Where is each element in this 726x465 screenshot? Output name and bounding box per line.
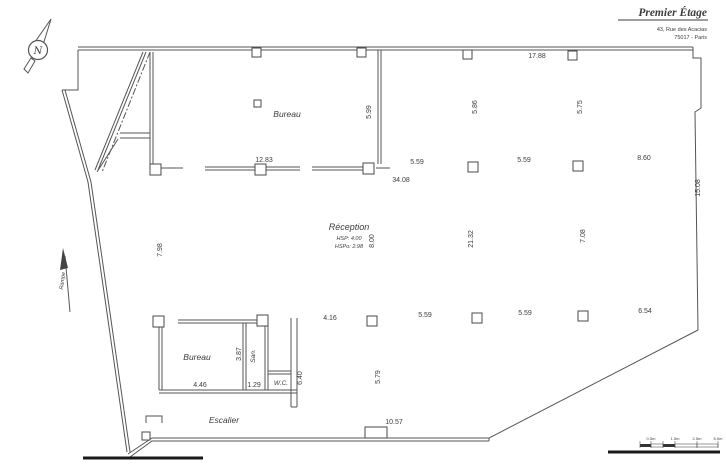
dim-bot-bay-3: 5.59 [518, 310, 532, 317]
dim-bay-height-2: 5.75 [577, 100, 584, 114]
room-label-bureau-top: Bureau [273, 109, 301, 119]
dim-bot-bay-4: 6.54 [638, 308, 652, 315]
dim-mid-bay-2: 5.59 [517, 157, 531, 164]
scale-label-4: 5.0m [714, 436, 724, 441]
page-title: Premier Étage [638, 5, 707, 19]
room-label-bureau-bottom: Bureau [183, 352, 211, 362]
reception-hspo: HSPo: 2.98 [335, 244, 364, 250]
stair-wall-hook [146, 416, 162, 423]
columns [150, 48, 588, 327]
ramp-axis-line [102, 52, 150, 172]
dimension-labels-vertical: 5.99 5.86 5.75 7.98 8.00 21.32 7.08 15.0… [157, 100, 702, 385]
dim-mid-bay-1: 5.59 [410, 159, 424, 166]
bottom-opening-rect [365, 427, 387, 438]
north-letter: N [33, 46, 44, 57]
floor-plan-page: Premier Étage 43, Rue des Acacias 75017 … [0, 0, 726, 465]
title-block: Premier Étage 43, Rue des Acacias 75017 … [618, 5, 708, 41]
dim-bot-bay-1: 4.16 [323, 315, 337, 322]
dim-bureau-top-height: 5.99 [366, 105, 373, 119]
dim-top-width: 17.88 [528, 53, 546, 60]
dim-bureau-width: 12.83 [255, 157, 273, 164]
dim-san-width: 1.29 [247, 382, 261, 389]
address-line-1: 43, Rue des Acacias [657, 27, 707, 33]
dim-right-height: 15.08 [695, 179, 702, 197]
address-line-2: 75017 - Paris [674, 35, 707, 41]
dim-mid-bay-3: 8.60 [637, 155, 651, 162]
room-label-wc: W.C. [274, 380, 288, 387]
dim-shaft-height: 6.40 [297, 371, 304, 385]
reception-hsp: HSP: 4.00 [336, 236, 362, 242]
room-label-escalier: Escalier [209, 415, 240, 425]
dim-bottom-opening: 10.57 [385, 419, 403, 426]
ramp-walls [60, 52, 150, 312]
scale-label-1: 0.5m [647, 436, 657, 441]
room-label-san: San. [250, 349, 257, 363]
floor-plan-svg: Premier Étage 43, Rue des Acacias 75017 … [0, 0, 726, 465]
dim-bay-height-1: 5.86 [472, 100, 479, 114]
dim-bureau-bottom-width: 4.46 [193, 382, 207, 389]
bottom-wall-notch [142, 432, 150, 440]
scale-label-3: 2.5m [693, 436, 703, 441]
dim-bureau-bottom-height: 3.87 [236, 347, 243, 361]
dim-bottom-bay-height: 5.79 [375, 370, 382, 384]
scale-bar: 0.5m 1.5m 2.5m 5.0m [608, 436, 723, 452]
dim-reception-width: 8.00 [369, 234, 376, 248]
dim-reception-height: 21.32 [468, 230, 475, 248]
dim-right-bay-height: 7.08 [580, 229, 587, 243]
north-handle-icon [24, 58, 35, 73]
ramp-label: Rampe [59, 272, 67, 290]
bureau-top-walls [150, 50, 390, 170]
dim-left-height: 7.98 [157, 243, 164, 257]
ramp-arrow-icon [60, 248, 68, 270]
room-labels: Bureau Réception HSP: 4.00 HSPo: 2.98 Bu… [59, 109, 369, 425]
north-arrow: N [24, 19, 51, 73]
dim-total-width: 34.08 [392, 177, 410, 184]
bottom-rooms-walls [146, 318, 387, 438]
room-label-reception: Réception [329, 222, 370, 232]
scale-label-2: 1.5m [671, 436, 681, 441]
dim-bot-bay-2: 5.59 [418, 312, 432, 319]
